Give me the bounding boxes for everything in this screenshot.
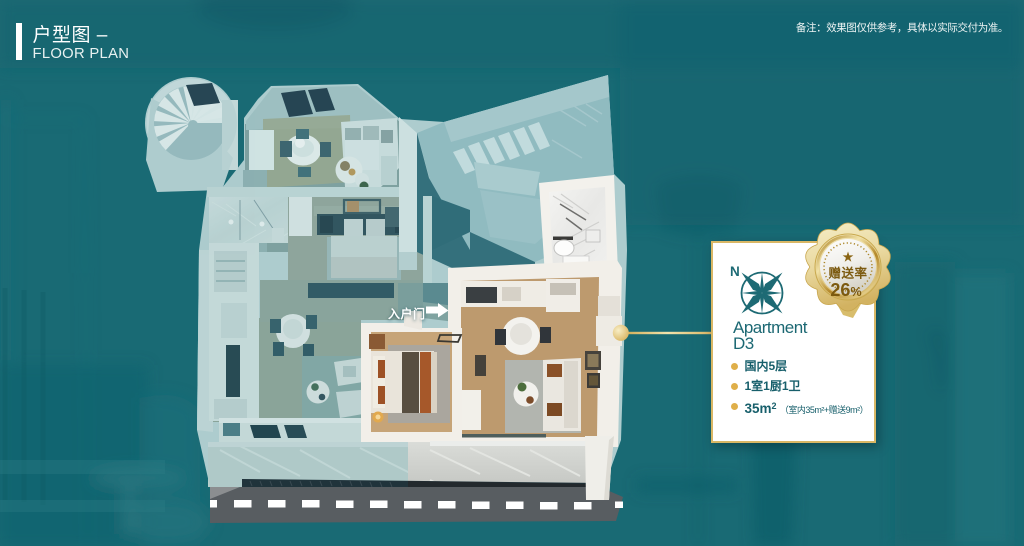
svg-text:★: ★: [843, 250, 854, 264]
svg-text:赠送率: 赠送率: [828, 266, 867, 281]
